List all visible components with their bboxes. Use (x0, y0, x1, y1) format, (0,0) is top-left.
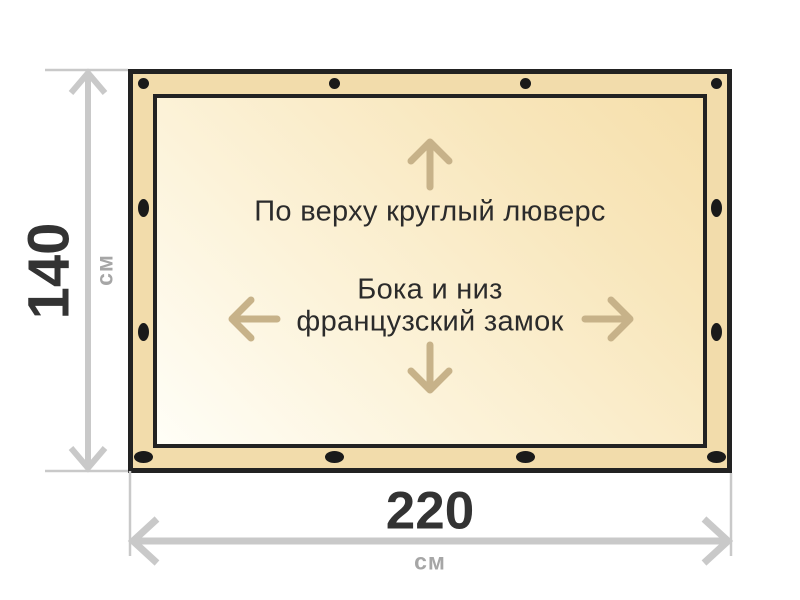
grommet-icon (711, 323, 722, 341)
grommet-icon (516, 451, 535, 463)
grommet-icon (138, 323, 149, 341)
grommet-icon (711, 199, 722, 217)
dimension-diagram: По верху круглый люверс Бока и низ франц… (0, 0, 800, 600)
annotation-center-line2: французский замок (296, 306, 563, 339)
grommet-icon (325, 451, 344, 463)
grommet-icon (711, 78, 722, 89)
grommet-icon (138, 78, 149, 89)
grommet-icon (329, 78, 340, 89)
height-unit: см (92, 254, 119, 286)
tarp-inner-panel (153, 94, 707, 448)
grommet-icon (520, 78, 531, 89)
width-value: 220 (386, 481, 474, 542)
grommet-icon (138, 199, 149, 217)
tarp-panel (128, 69, 732, 473)
annotation-center-line1: Бока и низ (357, 274, 502, 307)
width-unit: см (414, 549, 446, 576)
grommet-icon (707, 451, 726, 463)
height-value: 140 (16, 223, 83, 320)
annotation-top-edge: По верху круглый люверс (254, 196, 605, 229)
grommet-icon (134, 451, 153, 463)
